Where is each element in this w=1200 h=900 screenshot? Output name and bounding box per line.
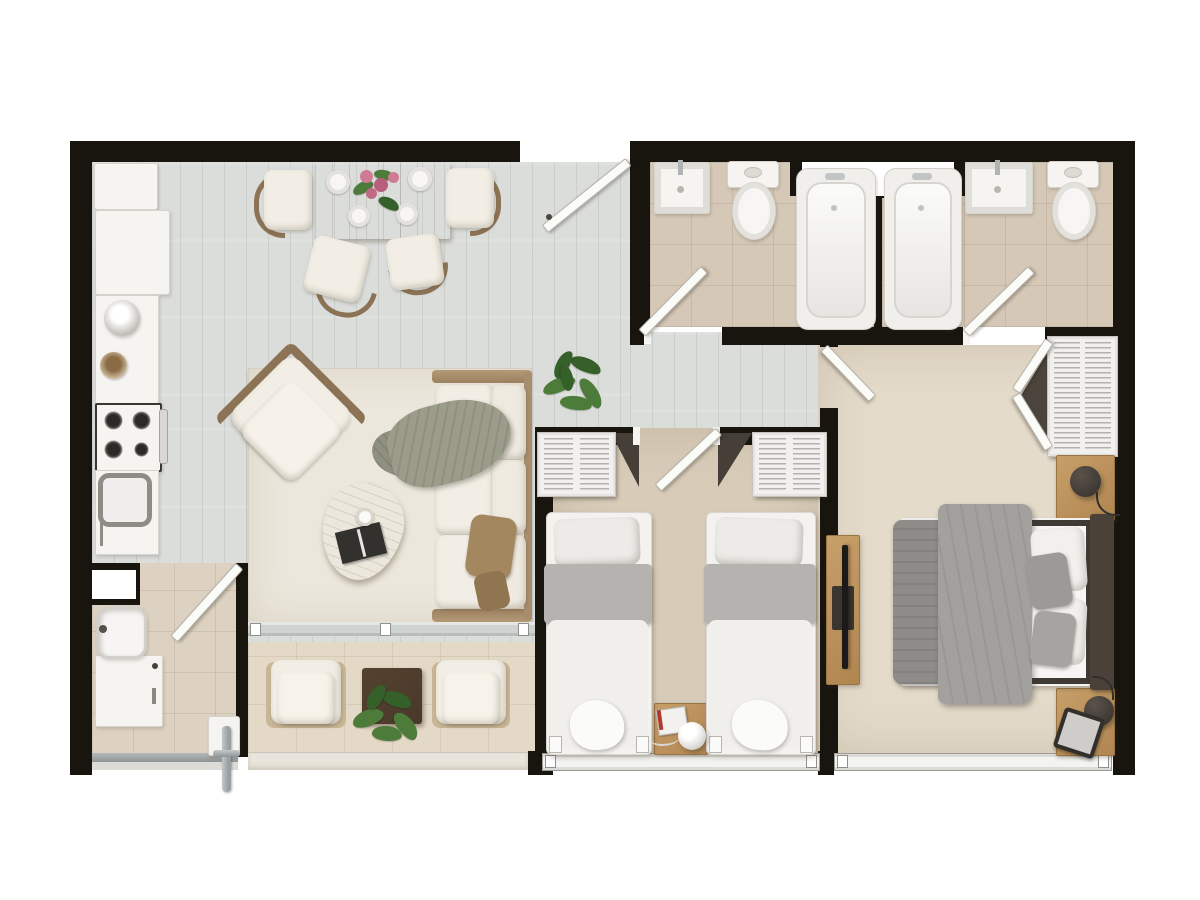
bed-pillow xyxy=(714,516,804,567)
dinner-plate-1 xyxy=(326,170,350,194)
bath2-toilet-button xyxy=(1064,167,1082,178)
burner-2 xyxy=(132,411,151,430)
gas-stove xyxy=(95,403,162,472)
bath2-sink-drain xyxy=(994,186,1001,193)
bath1-toilet-bowl xyxy=(732,182,776,240)
living-slider-track xyxy=(248,622,535,636)
master-window-handle-left xyxy=(837,755,848,768)
master-bed xyxy=(893,510,1115,692)
bed-pillow xyxy=(553,517,641,568)
bath2-sink-faucet xyxy=(995,160,1000,175)
flower-bloom-1 xyxy=(360,170,373,183)
floor-hallway xyxy=(630,332,820,428)
twin-window-handle-right xyxy=(806,755,817,768)
bath2-bathtub-drain xyxy=(918,205,924,211)
burner-1 xyxy=(104,411,123,430)
master-lamp-top xyxy=(1070,466,1101,497)
laundry-bottom-sill xyxy=(92,762,238,770)
pillow-gray-top xyxy=(1024,551,1074,611)
wall-right xyxy=(1113,141,1135,775)
wall-top-left xyxy=(70,141,520,162)
bath1-bathtub xyxy=(796,168,876,330)
oven-handle xyxy=(159,409,168,464)
dining-chair-bottom2 xyxy=(385,232,446,291)
kitchen-cabinet xyxy=(95,210,170,295)
wall-left xyxy=(70,141,92,775)
flower-centerpiece xyxy=(352,168,404,218)
gray-duvet xyxy=(938,504,1032,704)
terrace-parapet xyxy=(248,752,528,770)
master-wardrobe xyxy=(1048,337,1117,456)
bed-gray-blanket xyxy=(704,564,816,624)
terrace-armchair-seat xyxy=(278,672,334,724)
threshold-twin-door-left xyxy=(633,427,640,445)
floor-plan xyxy=(0,0,1200,900)
twin-table-lamp xyxy=(678,722,706,750)
terrace-armchair-right xyxy=(432,660,510,732)
bath1-sink-drain xyxy=(677,186,684,193)
snack-bowl xyxy=(100,352,127,379)
living-slider-handle-2 xyxy=(380,623,391,636)
wardrobe-shelf-column xyxy=(759,438,786,491)
sofa-armrest-top xyxy=(432,370,532,383)
flower-bloom-4 xyxy=(366,188,377,199)
terrace-armchair-left xyxy=(266,660,346,732)
bed-frame-foot-left xyxy=(549,736,562,753)
kettle xyxy=(104,300,140,336)
drain-pipe xyxy=(222,726,231,792)
bed-frame-foot-right xyxy=(636,736,649,753)
dinner-plate-2 xyxy=(408,167,432,191)
twin-sliding-window xyxy=(542,753,820,771)
twin-bed-left xyxy=(546,512,650,753)
bath2-bathtub xyxy=(884,168,962,330)
wardrobe-shelf-column xyxy=(793,438,820,491)
twin-wardrobe-left xyxy=(538,433,615,496)
burner-4 xyxy=(134,442,149,457)
wardrobe-shelf-column xyxy=(580,438,609,491)
tv xyxy=(842,545,848,669)
bath1-bathtub-basin xyxy=(806,182,866,318)
hall-plant xyxy=(540,352,610,422)
twin-window-handle-left xyxy=(545,755,556,768)
wardrobe-clothes-column xyxy=(1054,342,1080,451)
living-slider-handle-3 xyxy=(518,623,529,636)
master-window-handle-right xyxy=(1098,755,1109,768)
twin-bed-right xyxy=(706,512,814,753)
coffee-cup xyxy=(356,508,374,526)
flower-bloom-3 xyxy=(388,172,399,183)
dining-chair-left xyxy=(264,170,312,230)
burner-3 xyxy=(104,440,123,459)
kitchen-sink xyxy=(98,473,152,527)
bath1-sink-faucet xyxy=(678,160,683,175)
washing-machine-knob xyxy=(152,663,158,669)
utility-sink-faucet xyxy=(99,625,107,633)
living-slider-handle-1 xyxy=(250,623,261,636)
wall-entry-bath-divider xyxy=(630,162,650,332)
bath2-toilet-bowl xyxy=(1052,182,1096,240)
pillow-gray-bottom xyxy=(1029,610,1077,669)
bed-frame-foot-right xyxy=(800,736,813,753)
terrace-plant xyxy=(352,688,424,746)
twin-wardrobe-right xyxy=(753,433,826,496)
dining-chair-right xyxy=(446,168,494,228)
kitchen-faucet xyxy=(100,520,103,546)
wall-top-right xyxy=(630,141,1135,162)
wall-master-west-top xyxy=(820,327,838,347)
bath2-bathtub-faucet xyxy=(912,173,932,180)
wardrobe-clothes-column xyxy=(1085,342,1111,451)
bath1-toilet-button xyxy=(744,167,762,178)
bath2-bathtub-basin xyxy=(894,182,952,318)
washing-machine-slot xyxy=(152,688,156,704)
entry-door-handle xyxy=(546,214,552,220)
wardrobe-shelf-column xyxy=(544,438,573,491)
plant-leaf xyxy=(569,352,604,378)
bath1-bathtub-drain xyxy=(831,205,837,211)
bed-gray-blanket xyxy=(544,564,652,624)
wall-post-twin-master xyxy=(818,751,834,775)
flower-leaf-2 xyxy=(377,193,402,214)
bath1-bathtub-faucet xyxy=(825,173,845,180)
headboard xyxy=(1090,514,1114,690)
drain-pipe-crossbar xyxy=(213,750,240,757)
bed-frame-foot-left xyxy=(709,736,722,753)
laundry-window xyxy=(92,570,136,599)
terrace-armchair-seat xyxy=(443,672,499,724)
refrigerator xyxy=(94,163,158,210)
sofa-armrest-bottom xyxy=(432,609,532,622)
